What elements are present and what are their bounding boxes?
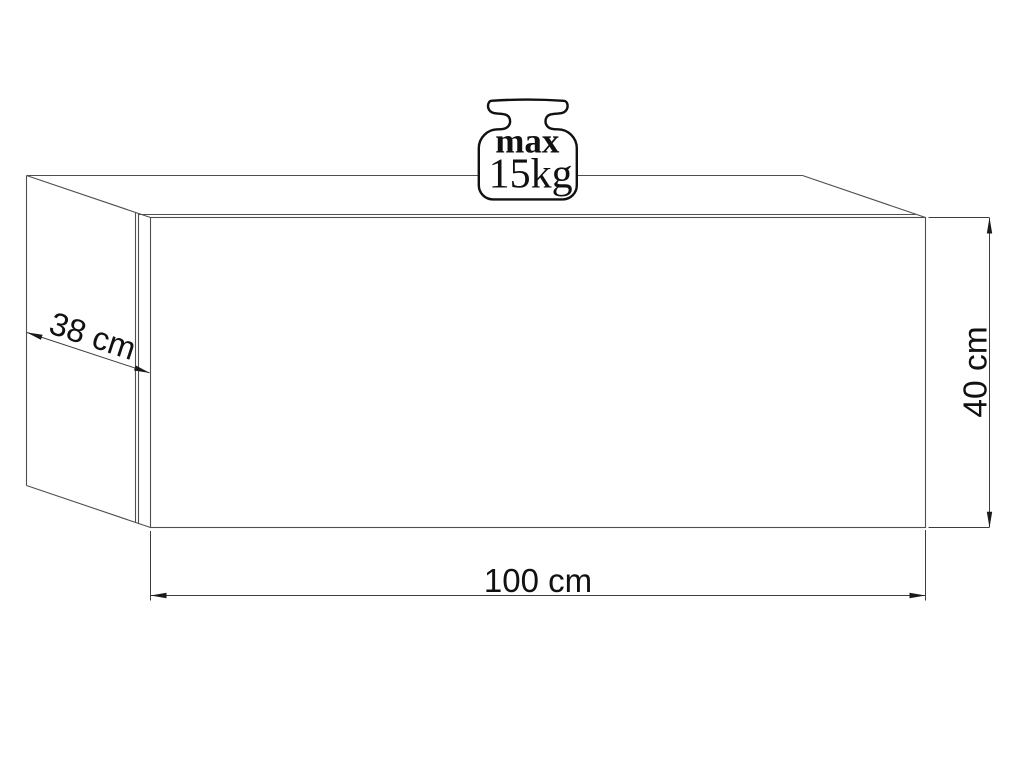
svg-text:100 cm: 100 cm: [484, 562, 592, 599]
svg-text:38 cm: 38 cm: [45, 305, 140, 367]
svg-text:40 cm: 40 cm: [958, 326, 995, 417]
svg-text:15kg: 15kg: [489, 151, 573, 197]
